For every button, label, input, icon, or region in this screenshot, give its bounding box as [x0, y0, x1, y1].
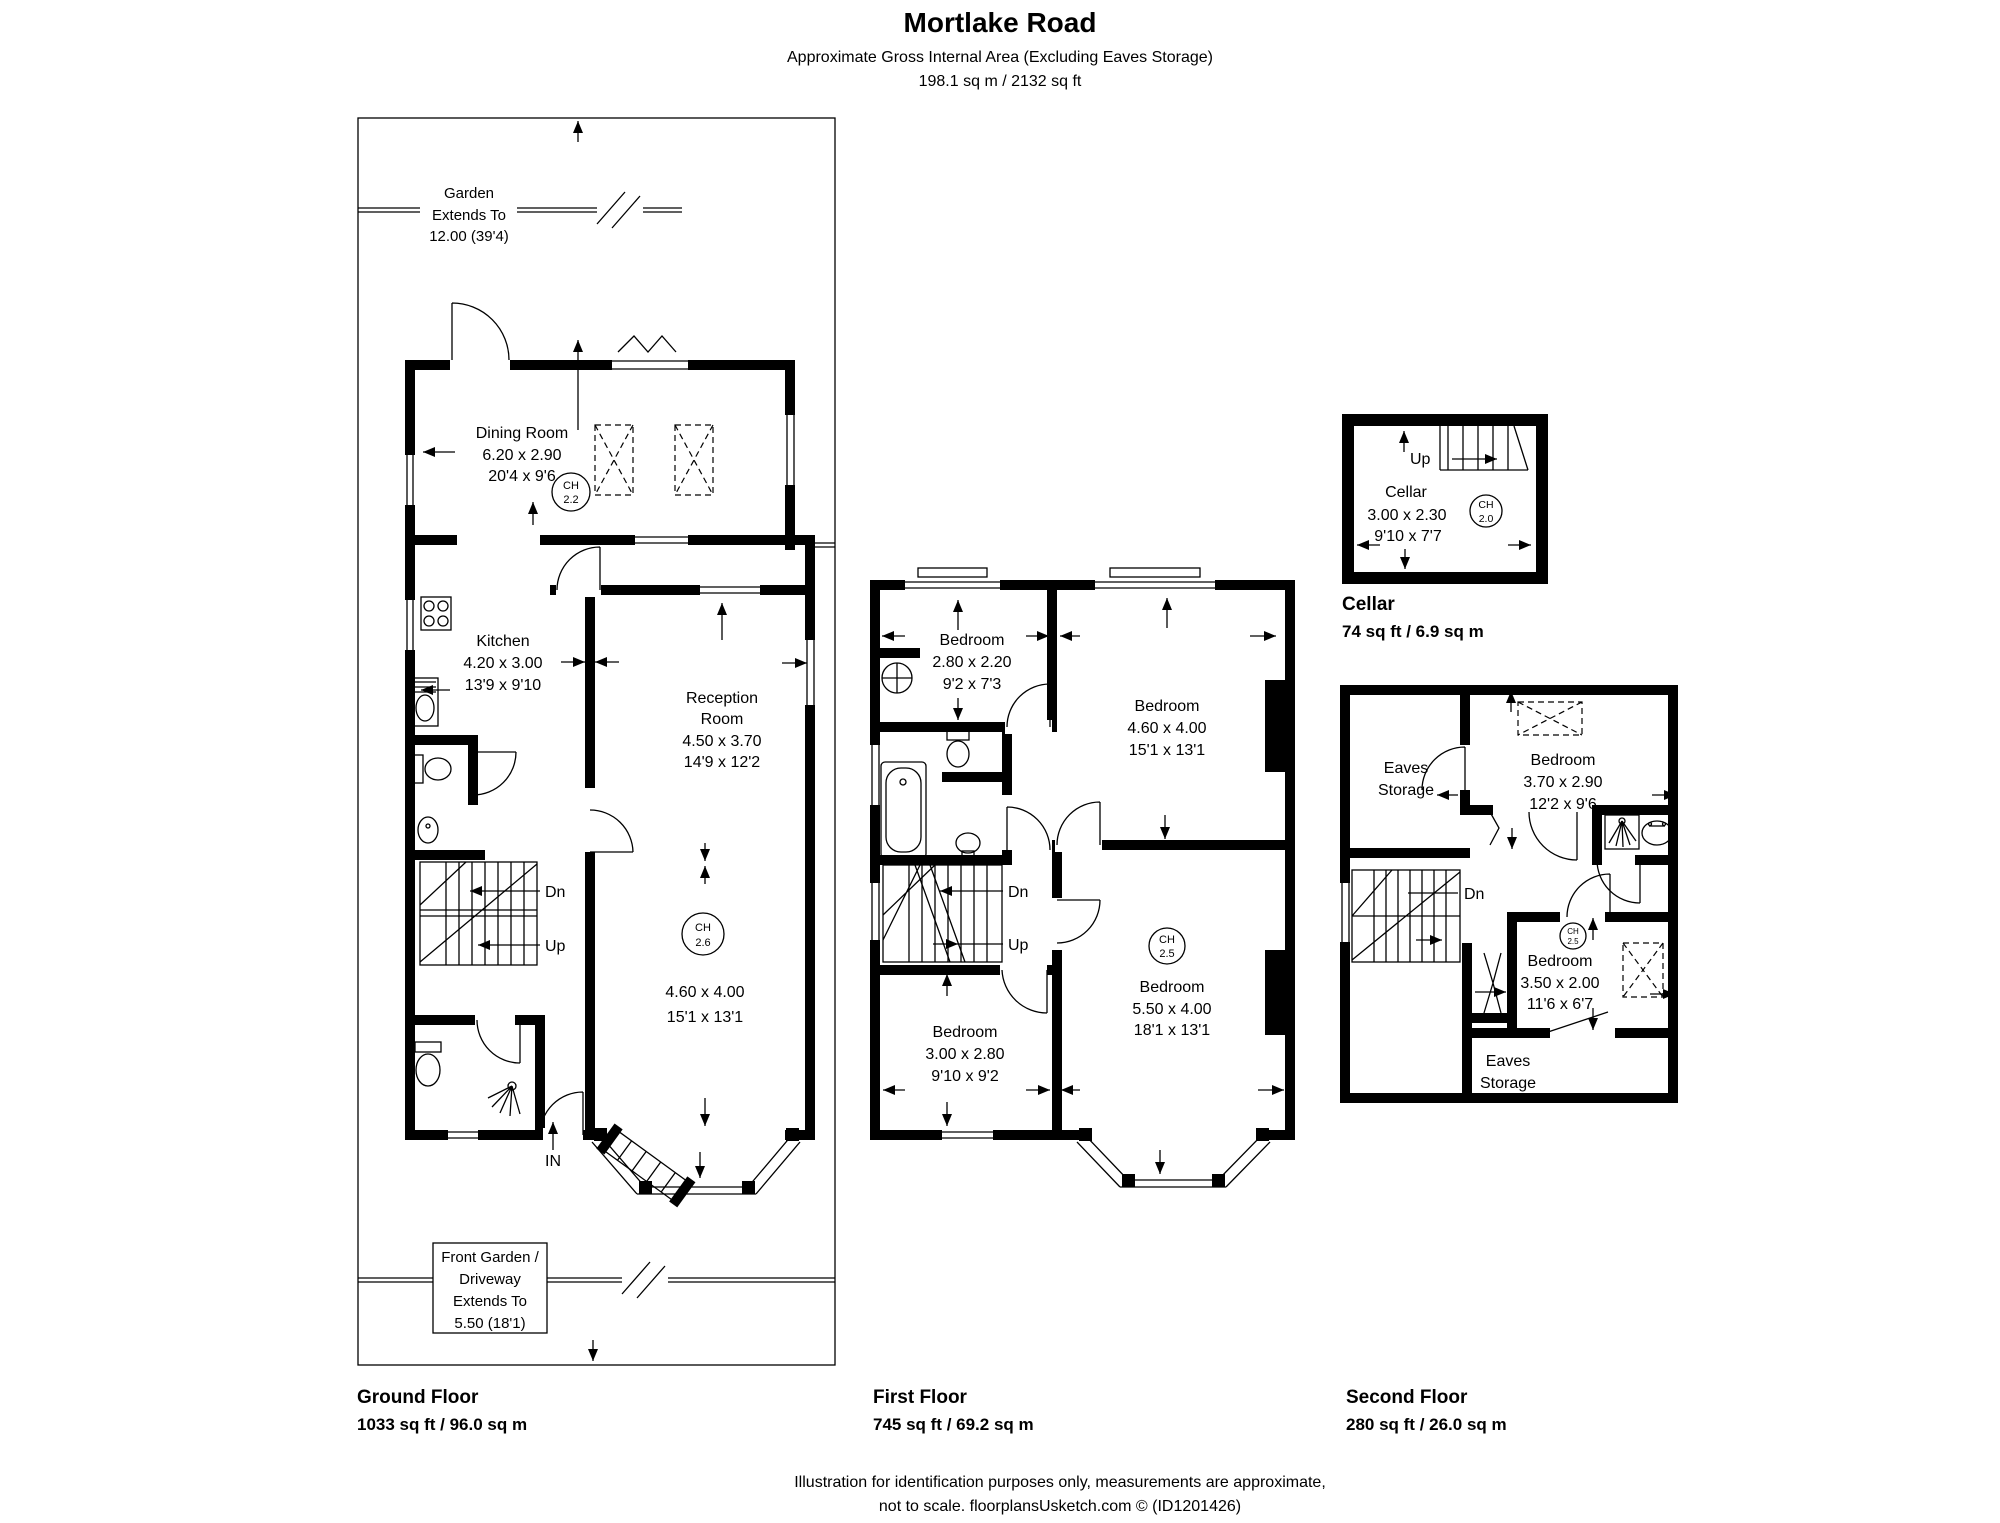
- eaves-storage-bottom: Eaves Storage: [1480, 1053, 1536, 1092]
- eaves-storage-top: Eaves Storage: [1378, 760, 1434, 799]
- reception-room: Reception Room 4.50 x 3.70 14'9 x 12'2 C…: [665, 690, 761, 1026]
- bifold-door-icon: [1484, 953, 1501, 1013]
- ground-floor-plan: Garden Extends To 12.00 (39'4) Front Gar…: [357, 118, 835, 1434]
- page-title: Mortlake Road: [904, 7, 1097, 38]
- disclaimer-line: not to scale. floorplansUsketch.com © (I…: [879, 1498, 1241, 1515]
- bay-window: [592, 1128, 800, 1194]
- front-note-line: Driveway: [459, 1271, 521, 1288]
- cellar-plan: Up Cellar 3.00 x 2.30 9'10 x 7'7 CH 2.0 …: [1342, 420, 1542, 641]
- fence-break-icon: [622, 1262, 665, 1298]
- bedroom-small: Bedroom 2.80 x 2.20 9'2 x 7'3: [932, 632, 1011, 693]
- room-name: Bedroom: [933, 1024, 998, 1041]
- cellar-dimension-arrows: [1357, 545, 1531, 569]
- room-imperial: 11'6 x 6'7: [1527, 996, 1593, 1013]
- room-imperial: 20'4 x 9'6: [488, 468, 556, 485]
- room-metric: 4.60 x 4.00: [665, 984, 744, 1001]
- room-imperial: 13'9 x 9'10: [465, 677, 541, 694]
- room-metric: 3.50 x 2.00: [1520, 975, 1599, 992]
- shower-icon: [488, 1082, 520, 1116]
- toilet-icon: [415, 1042, 441, 1052]
- room-imperial: 18'1 x 13'1: [1134, 1022, 1210, 1039]
- garden-note-box: Garden Extends To 12.00 (39'4): [420, 177, 517, 245]
- disclaimer-line: Illustration for identification purposes…: [794, 1474, 1326, 1491]
- first-floor-plan: Dn Up Bedroom 2.80 x 2.20 9'2 x 7'3 Bedr…: [868, 568, 1290, 1434]
- room-imperial: 12'2 x 9'6: [1529, 796, 1597, 813]
- ch-value: 2.2: [563, 494, 578, 506]
- front-note-line: 5.50 (18'1): [454, 1315, 525, 1332]
- front-note-line: Front Garden /: [441, 1249, 539, 1266]
- room-imperial: 9'2 x 7'3: [943, 676, 1002, 693]
- cellar-room: Cellar 3.00 x 2.30 9'10 x 7'7 CH 2.0: [1367, 484, 1502, 545]
- room-name: Reception: [686, 690, 758, 707]
- ch-label: CH: [1478, 499, 1493, 511]
- bedroom-rear: Bedroom 4.60 x 4.00 15'1 x 13'1: [1127, 698, 1206, 759]
- bedroom-front: CH 2.5 Bedroom 3.50 x 2.00 11'6 x 6'7: [1520, 923, 1599, 1013]
- first-floor-label: First Floor: [873, 1387, 968, 1408]
- room-name: Bedroom: [1528, 953, 1593, 970]
- window-zigzag-icon: [618, 336, 676, 352]
- toilet-icon: [947, 730, 969, 767]
- stairs-up-label: Up: [1008, 937, 1029, 954]
- room-name: Eaves: [1384, 760, 1428, 777]
- footer: Illustration for identification purposes…: [794, 1474, 1326, 1515]
- room-name: Bedroom: [1135, 698, 1200, 715]
- shower-icon: [1605, 815, 1639, 849]
- room-metric: 6.20 x 2.90: [482, 447, 561, 464]
- room-name: Storage: [1378, 782, 1434, 799]
- fence-break-icon: [597, 192, 640, 228]
- ground-floor-label: Ground Floor: [357, 1387, 479, 1408]
- ch-value: 2.0: [1479, 513, 1494, 525]
- room-metric: 2.80 x 2.20: [932, 654, 1011, 671]
- room-metric: 3.00 x 2.30: [1367, 507, 1446, 524]
- page-subtitle: Approximate Gross Internal Area (Excludi…: [787, 49, 1213, 66]
- room-metric: 5.50 x 4.00: [1132, 1001, 1211, 1018]
- kitchen: Kitchen 4.20 x 3.00 13'9 x 9'10: [463, 633, 542, 694]
- basin-icon: [1642, 821, 1672, 845]
- entrance-label: IN: [545, 1153, 561, 1170]
- room-imperial: 9'10 x 7'7: [1374, 528, 1442, 545]
- ch-value: 2.6: [695, 937, 710, 949]
- room-name: Eaves: [1486, 1053, 1530, 1070]
- garden-note-line: Extends To: [432, 207, 506, 224]
- ch-label: CH: [1159, 934, 1175, 946]
- skylight-icon: [595, 425, 713, 495]
- cellar-walls: [1348, 420, 1542, 578]
- second-walls: [1345, 690, 1673, 1098]
- room-metric: 3.70 x 2.90: [1523, 774, 1602, 791]
- room-name: Kitchen: [476, 633, 529, 650]
- ground-walls: [410, 365, 810, 1135]
- room-name: Storage: [1480, 1075, 1536, 1092]
- dining-room: Dining Room 6.20 x 2.90 20'4 x 9'6 CH 2.…: [476, 425, 590, 511]
- second-floor-area: 280 sq ft / 26.0 sq m: [1346, 1415, 1507, 1434]
- basin-icon: [956, 833, 980, 858]
- garden-note-line: 12.00 (39'4): [429, 228, 509, 245]
- room-metric: 4.20 x 3.00: [463, 655, 542, 672]
- chimney-breast: [1265, 950, 1290, 1035]
- room-name: Bedroom: [1140, 979, 1205, 996]
- hob-icon: [421, 597, 451, 630]
- bath-icon: [881, 762, 926, 858]
- room-name: Bedroom: [940, 632, 1005, 649]
- ch-value: 2.5: [1567, 937, 1579, 946]
- entrance-steps-icon: [596, 1124, 695, 1208]
- front-garden-note-box: Front Garden / Driveway Extends To 5.50 …: [433, 1243, 547, 1333]
- title-block: Mortlake Road Approximate Gross Internal…: [787, 7, 1213, 90]
- room-name: Cellar: [1385, 484, 1427, 501]
- room-name: Room: [701, 711, 744, 728]
- ch-value: 2.5: [1159, 948, 1174, 960]
- cellar-label: Cellar: [1342, 594, 1395, 615]
- cellar-stairs: Up: [1404, 426, 1528, 470]
- room-name: Bedroom: [1531, 752, 1596, 769]
- ch-label: CH: [695, 922, 711, 934]
- toilet-icon: [412, 755, 451, 783]
- sink-icon: [412, 678, 438, 726]
- ch-label: CH: [563, 480, 579, 492]
- chimney-breast: [1265, 680, 1290, 772]
- room-imperial: 9'10 x 9'2: [931, 1068, 999, 1085]
- ground-floor-area: 1033 sq ft / 96.0 sq m: [357, 1415, 527, 1434]
- stairs-down-label: Dn: [545, 884, 565, 901]
- cellar-area: 74 sq ft / 6.9 sq m: [1342, 622, 1484, 641]
- bedroom-mid: Bedroom 3.00 x 2.80 9'10 x 9'2: [925, 1024, 1004, 1085]
- stairs-up-label: Up: [1410, 451, 1431, 468]
- garden-note-line: Garden: [444, 185, 494, 202]
- stairs-up-label: Up: [545, 938, 566, 955]
- room-metric: 4.60 x 4.00: [1127, 720, 1206, 737]
- stairs-down-label: Dn: [1464, 886, 1484, 903]
- first-stairs: Dn Up: [883, 865, 1029, 962]
- first-floor-area: 745 sq ft / 69.2 sq m: [873, 1415, 1034, 1434]
- room-metric: 3.00 x 2.80: [925, 1046, 1004, 1063]
- ch-label: CH: [1567, 927, 1579, 936]
- basin-icon: [418, 817, 438, 843]
- stairs-down-label: Dn: [1008, 884, 1028, 901]
- second-floor-plan: Dn Eaves Storage Bedroom 3.70 x 2.90 12'…: [1338, 690, 1676, 1434]
- bedroom-rear: Bedroom 3.70 x 2.90 12'2 x 9'6: [1523, 752, 1602, 813]
- bay-window: [1077, 1128, 1270, 1187]
- garden-fence: [358, 208, 682, 212]
- bedroom-front: CH 2.5 Bedroom 5.50 x 4.00 18'1 x 13'1: [1132, 928, 1211, 1039]
- floorplan-page: Mortlake Road Approximate Gross Internal…: [0, 0, 2000, 1523]
- room-imperial: 15'1 x 13'1: [667, 1009, 743, 1026]
- floorplan-drawing: Mortlake Road Approximate Gross Internal…: [0, 0, 2000, 1523]
- basin-icon: [882, 663, 912, 693]
- toilet-icon: [416, 1054, 440, 1086]
- front-fence: [358, 1278, 835, 1282]
- room-imperial: 14'9 x 12'2: [684, 754, 760, 771]
- room-imperial: 15'1 x 13'1: [1129, 742, 1205, 759]
- total-area: 198.1 sq m / 2132 sq ft: [919, 73, 1082, 90]
- room-metric: 4.50 x 3.70: [682, 733, 761, 750]
- room-name: Dining Room: [476, 425, 568, 442]
- second-floor-label: Second Floor: [1346, 1387, 1468, 1408]
- bathroom-fixtures: [415, 1042, 520, 1116]
- ground-stairs: Dn Up: [420, 862, 566, 965]
- bifold-door-icon: [1490, 812, 1499, 845]
- front-note-line: Extends To: [453, 1293, 527, 1310]
